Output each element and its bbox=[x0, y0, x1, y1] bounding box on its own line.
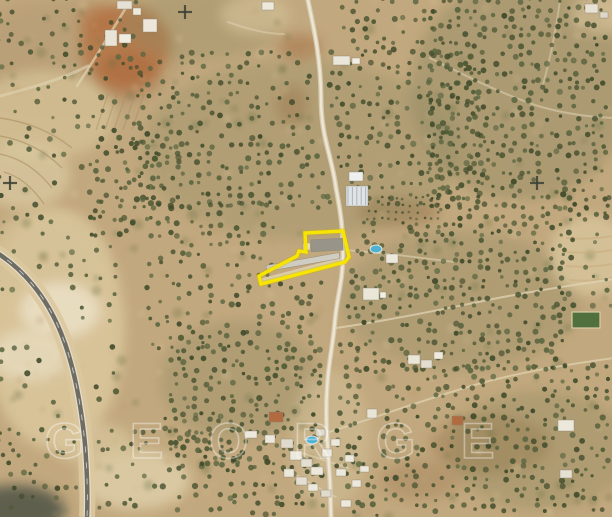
watermark-text: GEORGE bbox=[45, 413, 540, 469]
satellite-photo[interactable]: GEORGE bbox=[0, 0, 612, 517]
aerial-map-canvas: GEORGE bbox=[0, 0, 612, 517]
